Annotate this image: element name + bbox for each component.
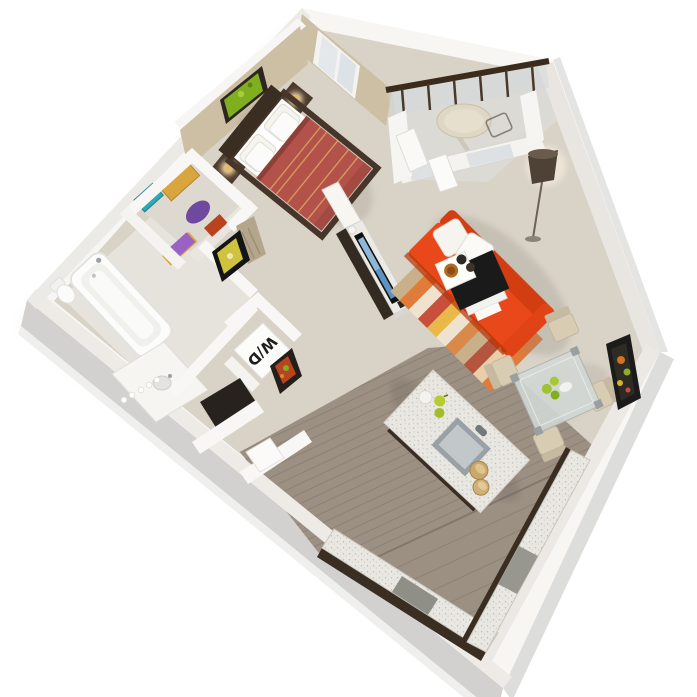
floor-plan-canvas: W/D	[0, 0, 697, 697]
floor-plan-3d: W/D	[0, 0, 697, 697]
console-vase	[348, 226, 356, 234]
